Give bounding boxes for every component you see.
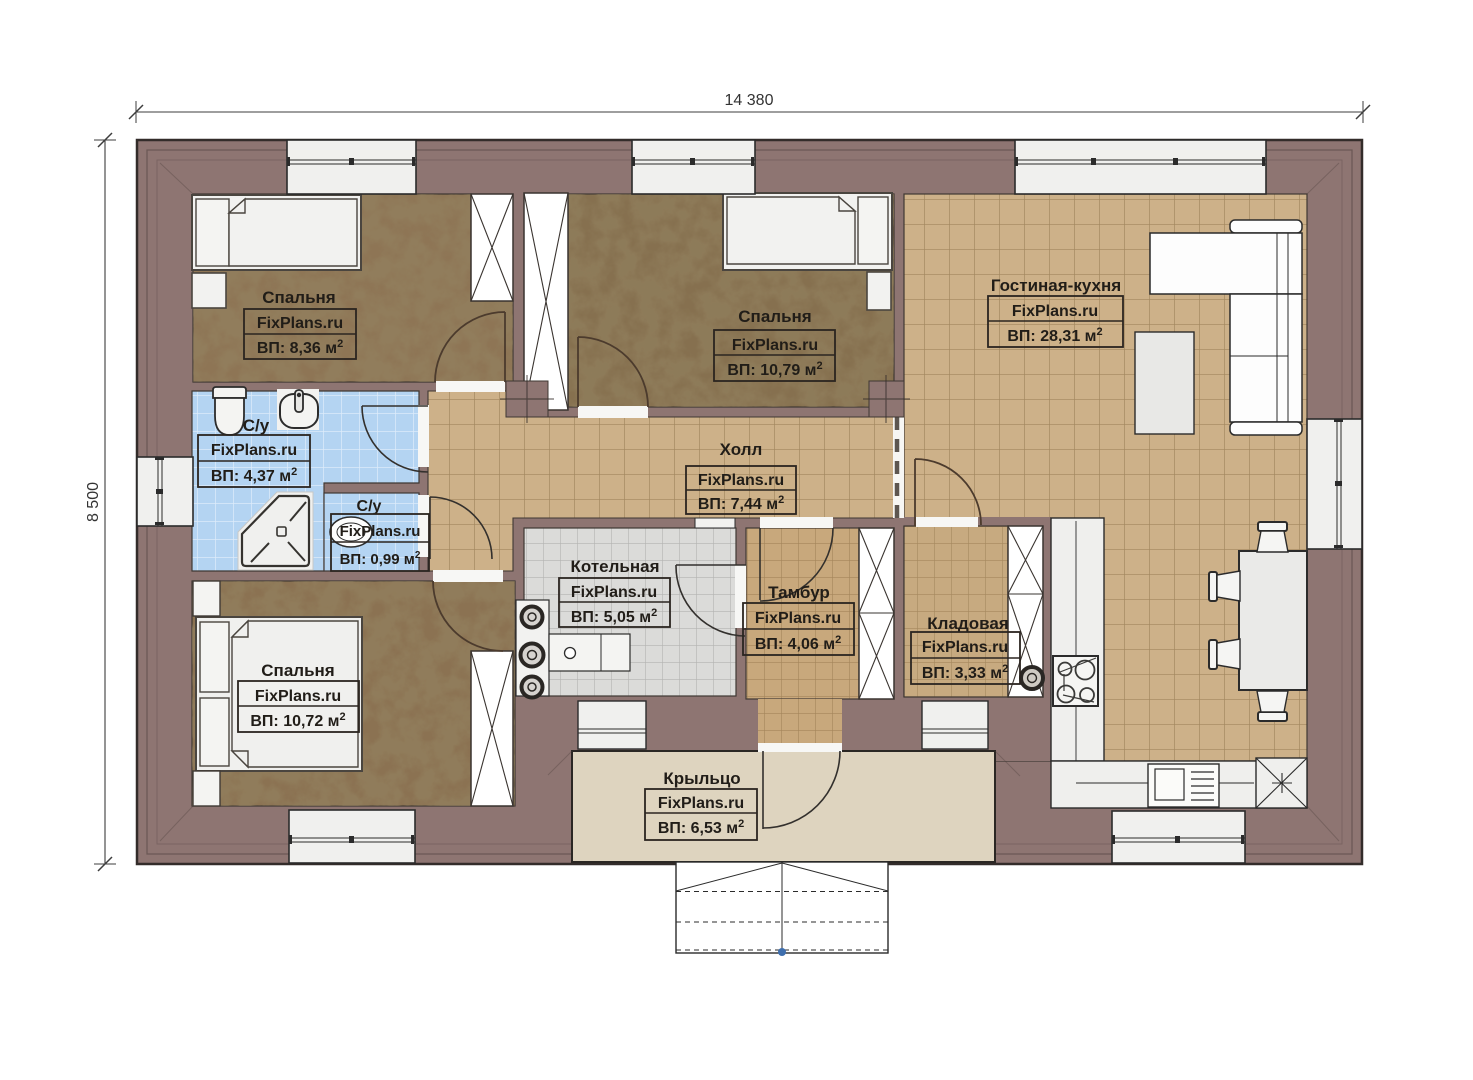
svg-text:С/у: С/у — [243, 416, 270, 435]
svg-text:ВП: 4,06 м2: ВП: 4,06 м2 — [755, 634, 841, 653]
svg-text:ВП: 3,33 м2: ВП: 3,33 м2 — [922, 663, 1008, 682]
svg-text:Спальня: Спальня — [262, 288, 335, 307]
svg-text:ВП: 0,99 м2: ВП: 0,99 м2 — [340, 550, 421, 568]
svg-text:FixPlans.ru: FixPlans.ru — [732, 337, 818, 354]
svg-text:Котельная: Котельная — [570, 557, 659, 576]
svg-text:FixPlans.ru: FixPlans.ru — [255, 688, 341, 705]
svg-text:FixPlans.ru: FixPlans.ru — [922, 639, 1008, 656]
svg-text:ВП: 6,53 м2: ВП: 6,53 м2 — [658, 818, 744, 837]
svg-text:Кладовая: Кладовая — [927, 614, 1008, 633]
svg-text:Крыльцо: Крыльцо — [663, 769, 740, 788]
svg-text:Холл: Холл — [720, 440, 763, 459]
svg-text:ВП: 10,79 м2: ВП: 10,79 м2 — [727, 360, 822, 379]
svg-text:FixPlans.ru: FixPlans.ru — [340, 523, 421, 540]
svg-text:FixPlans.ru: FixPlans.ru — [257, 315, 343, 332]
svg-text:FixPlans.ru: FixPlans.ru — [571, 584, 657, 601]
svg-text:FixPlans.ru: FixPlans.ru — [755, 610, 841, 627]
svg-text:Гостиная-кухня: Гостиная-кухня — [991, 276, 1121, 295]
svg-text:С/у: С/у — [357, 498, 382, 515]
svg-text:FixPlans.ru: FixPlans.ru — [1012, 303, 1098, 320]
svg-text:Спальня: Спальня — [738, 307, 811, 326]
svg-text:FixPlans.ru: FixPlans.ru — [211, 442, 297, 459]
svg-text:Тамбур: Тамбур — [768, 583, 830, 602]
svg-text:Спальня: Спальня — [261, 661, 334, 680]
svg-text:ВП: 5,05 м2: ВП: 5,05 м2 — [571, 607, 657, 626]
svg-text:ВП: 10,72 м2: ВП: 10,72 м2 — [250, 711, 345, 730]
svg-text:ВП: 28,31 м2: ВП: 28,31 м2 — [1007, 326, 1102, 345]
svg-text:ВП: 8,36 м2: ВП: 8,36 м2 — [257, 338, 343, 357]
svg-text:ВП: 4,37 м2: ВП: 4,37 м2 — [211, 466, 297, 485]
svg-text:FixPlans.ru: FixPlans.ru — [698, 472, 784, 489]
svg-text:ВП: 7,44 м2: ВП: 7,44 м2 — [698, 494, 784, 513]
svg-text:8 500: 8 500 — [85, 482, 102, 522]
svg-text:FixPlans.ru: FixPlans.ru — [658, 795, 744, 812]
svg-text:14 380: 14 380 — [725, 92, 774, 109]
